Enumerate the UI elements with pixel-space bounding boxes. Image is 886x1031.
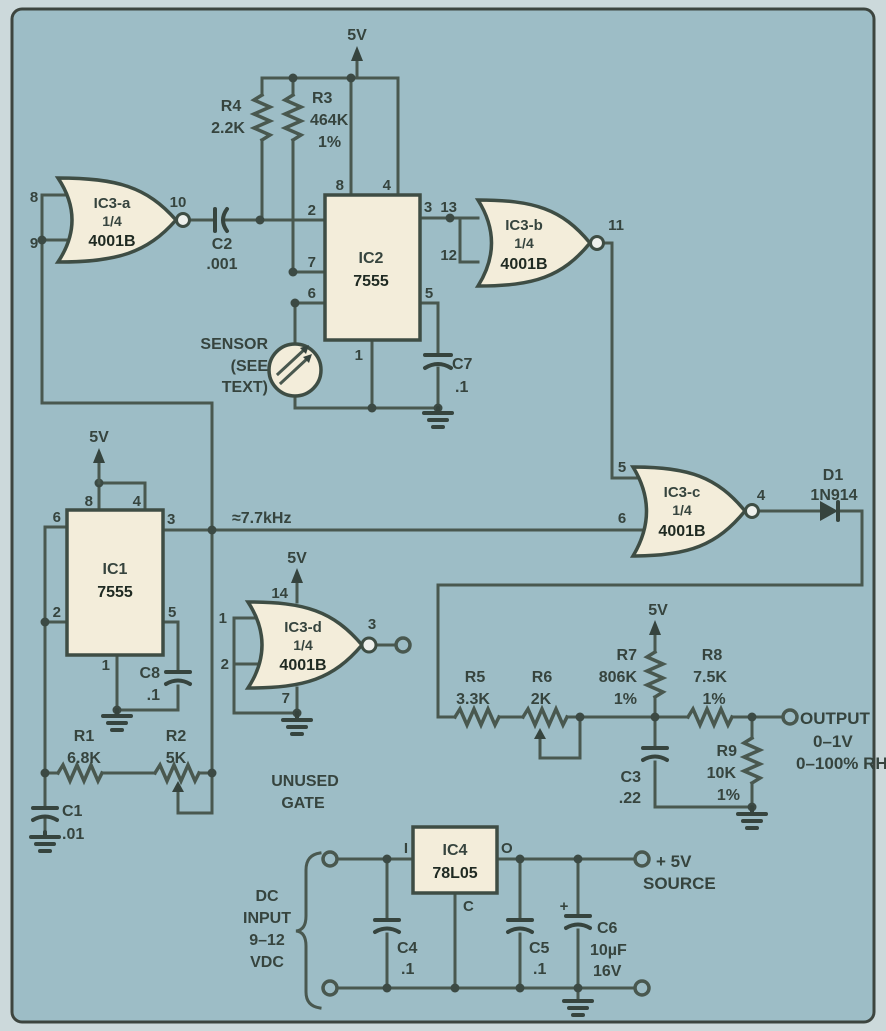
c6-polarity: +: [560, 898, 569, 915]
dc-label-3: 9–12: [249, 932, 285, 949]
v5-top-label: 5V: [347, 27, 367, 44]
ic1-part: 7555: [97, 584, 133, 601]
ic2-body: [325, 195, 420, 340]
ic3b-part: 4001B: [500, 256, 547, 273]
ic2-pin3: 3: [424, 199, 432, 216]
ic1-pin4: 4: [133, 493, 142, 510]
r3-value: 464K: [310, 112, 349, 129]
sensor-label-1: SENSOR: [200, 336, 268, 353]
ic3c-pin-in1: 5: [618, 459, 626, 476]
ic3c-name: IC3-c: [664, 484, 701, 501]
ic1-timer: IC1 7555 8 4 6 2 3 5 1: [53, 493, 177, 674]
ic1-pin2: 2: [53, 604, 61, 621]
ic4-pin-out: O: [501, 840, 513, 857]
ic2-name: IC2: [359, 250, 384, 267]
c3-ref: C3: [621, 769, 642, 786]
ic3a-part: 4001B: [88, 233, 135, 250]
dc-label-2: INPUT: [243, 910, 291, 927]
c5-value: .1: [533, 961, 546, 978]
output-terminal: [783, 710, 797, 724]
dc-input-terminal-top: [323, 852, 337, 866]
r7-ref: R7: [617, 647, 638, 664]
ic2-pin6: 6: [308, 285, 316, 302]
v5-ic1-label: 5V: [89, 429, 109, 446]
r3-ref: R3: [312, 90, 333, 107]
ic4-body: [413, 827, 497, 893]
ic3d-pin-gnd: 7: [282, 690, 290, 707]
d1-part: 1N914: [810, 487, 857, 504]
schematic-page: 5V 5V 5V 5V R4 2.2K R3 464K 1% R1 6.8K R…: [0, 0, 886, 1031]
r3-tolerance: 1%: [318, 134, 341, 151]
r9-tolerance: 1%: [717, 787, 740, 804]
ic3a-name: IC3-a: [94, 195, 131, 212]
ic3a-pin-out: 10: [170, 194, 187, 211]
c2-ref: C2: [212, 236, 233, 253]
frequency-label: ≈7.7kHz: [232, 510, 291, 527]
ic2-pin8: 8: [336, 177, 344, 194]
output-label: OUTPUT: [800, 709, 871, 728]
ic3d-name: IC3-d: [284, 619, 322, 636]
dc-label-4: VDC: [250, 954, 284, 971]
ic3a-frac: 1/4: [102, 213, 122, 229]
ic3d-pin-in1: 1: [219, 610, 227, 627]
unused-gate-label-1: UNUSED: [271, 773, 339, 790]
ic2-pin2: 2: [308, 202, 316, 219]
ic2-timer: IC2 7555 2 7 6 8 4 3 5 1: [308, 177, 434, 364]
r2-value: 5K: [166, 750, 187, 767]
r6-value: 2K: [531, 691, 552, 708]
ic3b-frac: 1/4: [514, 235, 534, 251]
ic3d-part: 4001B: [279, 657, 326, 674]
v5-ic3d-label: 5V: [287, 550, 307, 567]
plus5-label: + 5V: [656, 852, 692, 871]
ic1-pin5: 5: [168, 604, 176, 621]
r5-value: 3.3K: [456, 691, 490, 708]
ic3a-bubble: [177, 214, 190, 227]
ic3b-bubble: [591, 237, 604, 250]
ic3b-name: IC3-b: [505, 217, 543, 234]
d1-ref: D1: [823, 467, 844, 484]
dc-input-terminal-bottom: [323, 981, 337, 995]
ic3c-pin-in2: 6: [618, 510, 626, 527]
ic3c-bubble: [746, 505, 759, 518]
c6-value: 10µF: [590, 942, 627, 959]
ic3d-pin-vdd: 14: [271, 585, 288, 602]
dc-label-1: DC: [255, 888, 279, 905]
ic2-pin5: 5: [425, 285, 433, 302]
ic2-pin4: 4: [383, 177, 392, 194]
ic3a-pin-in2: 9: [30, 235, 38, 252]
ic3c-frac: 1/4: [672, 502, 692, 518]
ic1-name: IC1: [103, 561, 128, 578]
ic3d-pin-out: 3: [368, 616, 376, 633]
sensor-label-2: (SEE: [231, 358, 269, 375]
c4-value: .1: [401, 961, 414, 978]
r8-ref: R8: [702, 647, 723, 664]
c3-value: .22: [619, 790, 641, 807]
ic2-pin1: 1: [355, 347, 363, 364]
r7-tolerance: 1%: [614, 691, 637, 708]
ic2-part: 7555: [353, 273, 389, 290]
c1-value: .01: [62, 826, 84, 843]
ic2-pin7: 7: [308, 254, 316, 271]
ic3b-pin-in1: 13: [440, 199, 457, 216]
plus5-terminal: [635, 852, 649, 866]
r9-ref: R9: [717, 743, 738, 760]
ic1-pin8: 8: [85, 493, 93, 510]
ic3b-pin-out: 11: [608, 217, 624, 234]
ic4-pin-common: C: [463, 898, 474, 915]
c6-ref: C6: [597, 920, 618, 937]
c6-rating: 16V: [593, 963, 622, 980]
r9-value: 10K: [707, 765, 737, 782]
output-range-rh: 0–100% RH: [796, 754, 886, 773]
r8-tolerance: 1%: [702, 691, 725, 708]
source-label: SOURCE: [643, 874, 716, 893]
output-range-v: 0–1V: [813, 732, 853, 751]
supply-return-terminal: [635, 981, 649, 995]
ic3d-pin-in2: 2: [221, 656, 229, 673]
ic1-pin3: 3: [167, 511, 175, 528]
circuit-schematic: 5V 5V 5V 5V R4 2.2K R3 464K 1% R1 6.8K R…: [0, 0, 886, 1031]
r7-value: 806K: [599, 669, 638, 686]
ic3a-pin-in1: 8: [30, 189, 38, 206]
c2-value: .001: [206, 256, 237, 273]
r2-ref: R2: [166, 728, 187, 745]
c5-ref: C5: [529, 940, 550, 957]
r6-ref: R6: [532, 669, 553, 686]
ic4-pin-in: I: [404, 840, 408, 857]
c7-ref: C7: [452, 356, 473, 373]
c8-value: .1: [147, 687, 160, 704]
r1-value: 6.8K: [67, 750, 101, 767]
ic3c-part: 4001B: [658, 523, 705, 540]
ic4-part: 78L05: [432, 865, 477, 882]
r4-value: 2.2K: [211, 120, 245, 137]
c1-ref: C1: [62, 803, 83, 820]
r8-value: 7.5K: [693, 669, 727, 686]
c4-ref: C4: [397, 940, 418, 957]
r5-ref: R5: [465, 669, 486, 686]
c7-value: .1: [455, 379, 468, 396]
r1-ref: R1: [74, 728, 95, 745]
ic1-body: [67, 510, 163, 655]
ic3b-pin-in2: 12: [440, 247, 457, 264]
v5-r7-label: 5V: [648, 602, 668, 619]
ic3c-pin-out: 4: [757, 487, 766, 504]
ic3d-frac: 1/4: [293, 637, 313, 653]
sensor-label-3: TEXT): [222, 379, 268, 396]
ic3d-bubble: [362, 638, 376, 652]
ic1-pin1: 1: [102, 657, 110, 674]
unused-gate-label-2: GATE: [281, 795, 325, 812]
ic1-pin6: 6: [53, 509, 61, 526]
ic4-name: IC4: [443, 842, 468, 859]
c8-ref: C8: [140, 665, 161, 682]
r4-ref: R4: [221, 98, 242, 115]
ic3d-output-terminal: [396, 638, 410, 652]
